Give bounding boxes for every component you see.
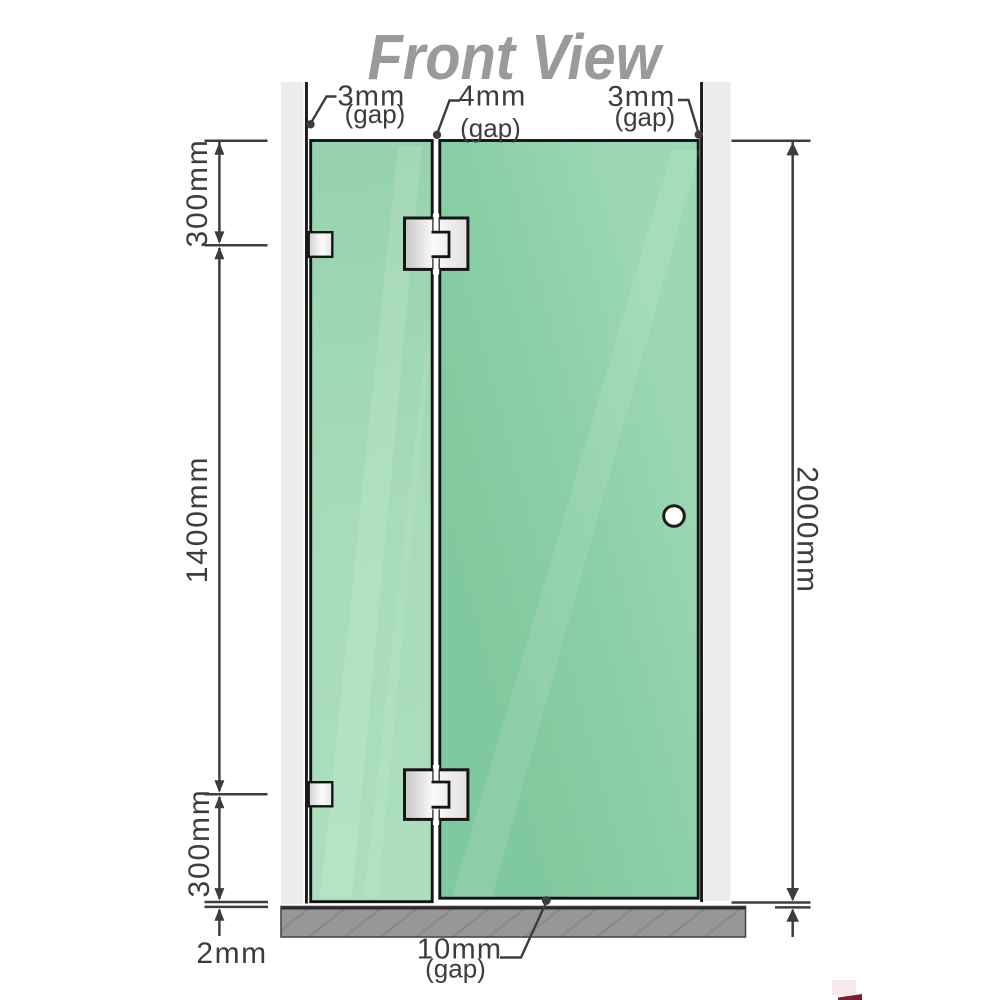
svg-text:(gap): (gap) (425, 954, 486, 984)
svg-text:1400mm: 1400mm (181, 456, 214, 584)
svg-text:300mm: 300mm (181, 138, 214, 247)
svg-text:(gap): (gap) (614, 102, 675, 132)
svg-text:2000mm: 2000mm (791, 466, 824, 594)
svg-text:(gap): (gap) (345, 99, 406, 129)
svg-text:2mm: 2mm (196, 937, 267, 970)
svg-text:300mm: 300mm (183, 788, 216, 897)
svg-text:(gap): (gap) (460, 113, 521, 143)
svg-text:4mm: 4mm (458, 81, 526, 113)
